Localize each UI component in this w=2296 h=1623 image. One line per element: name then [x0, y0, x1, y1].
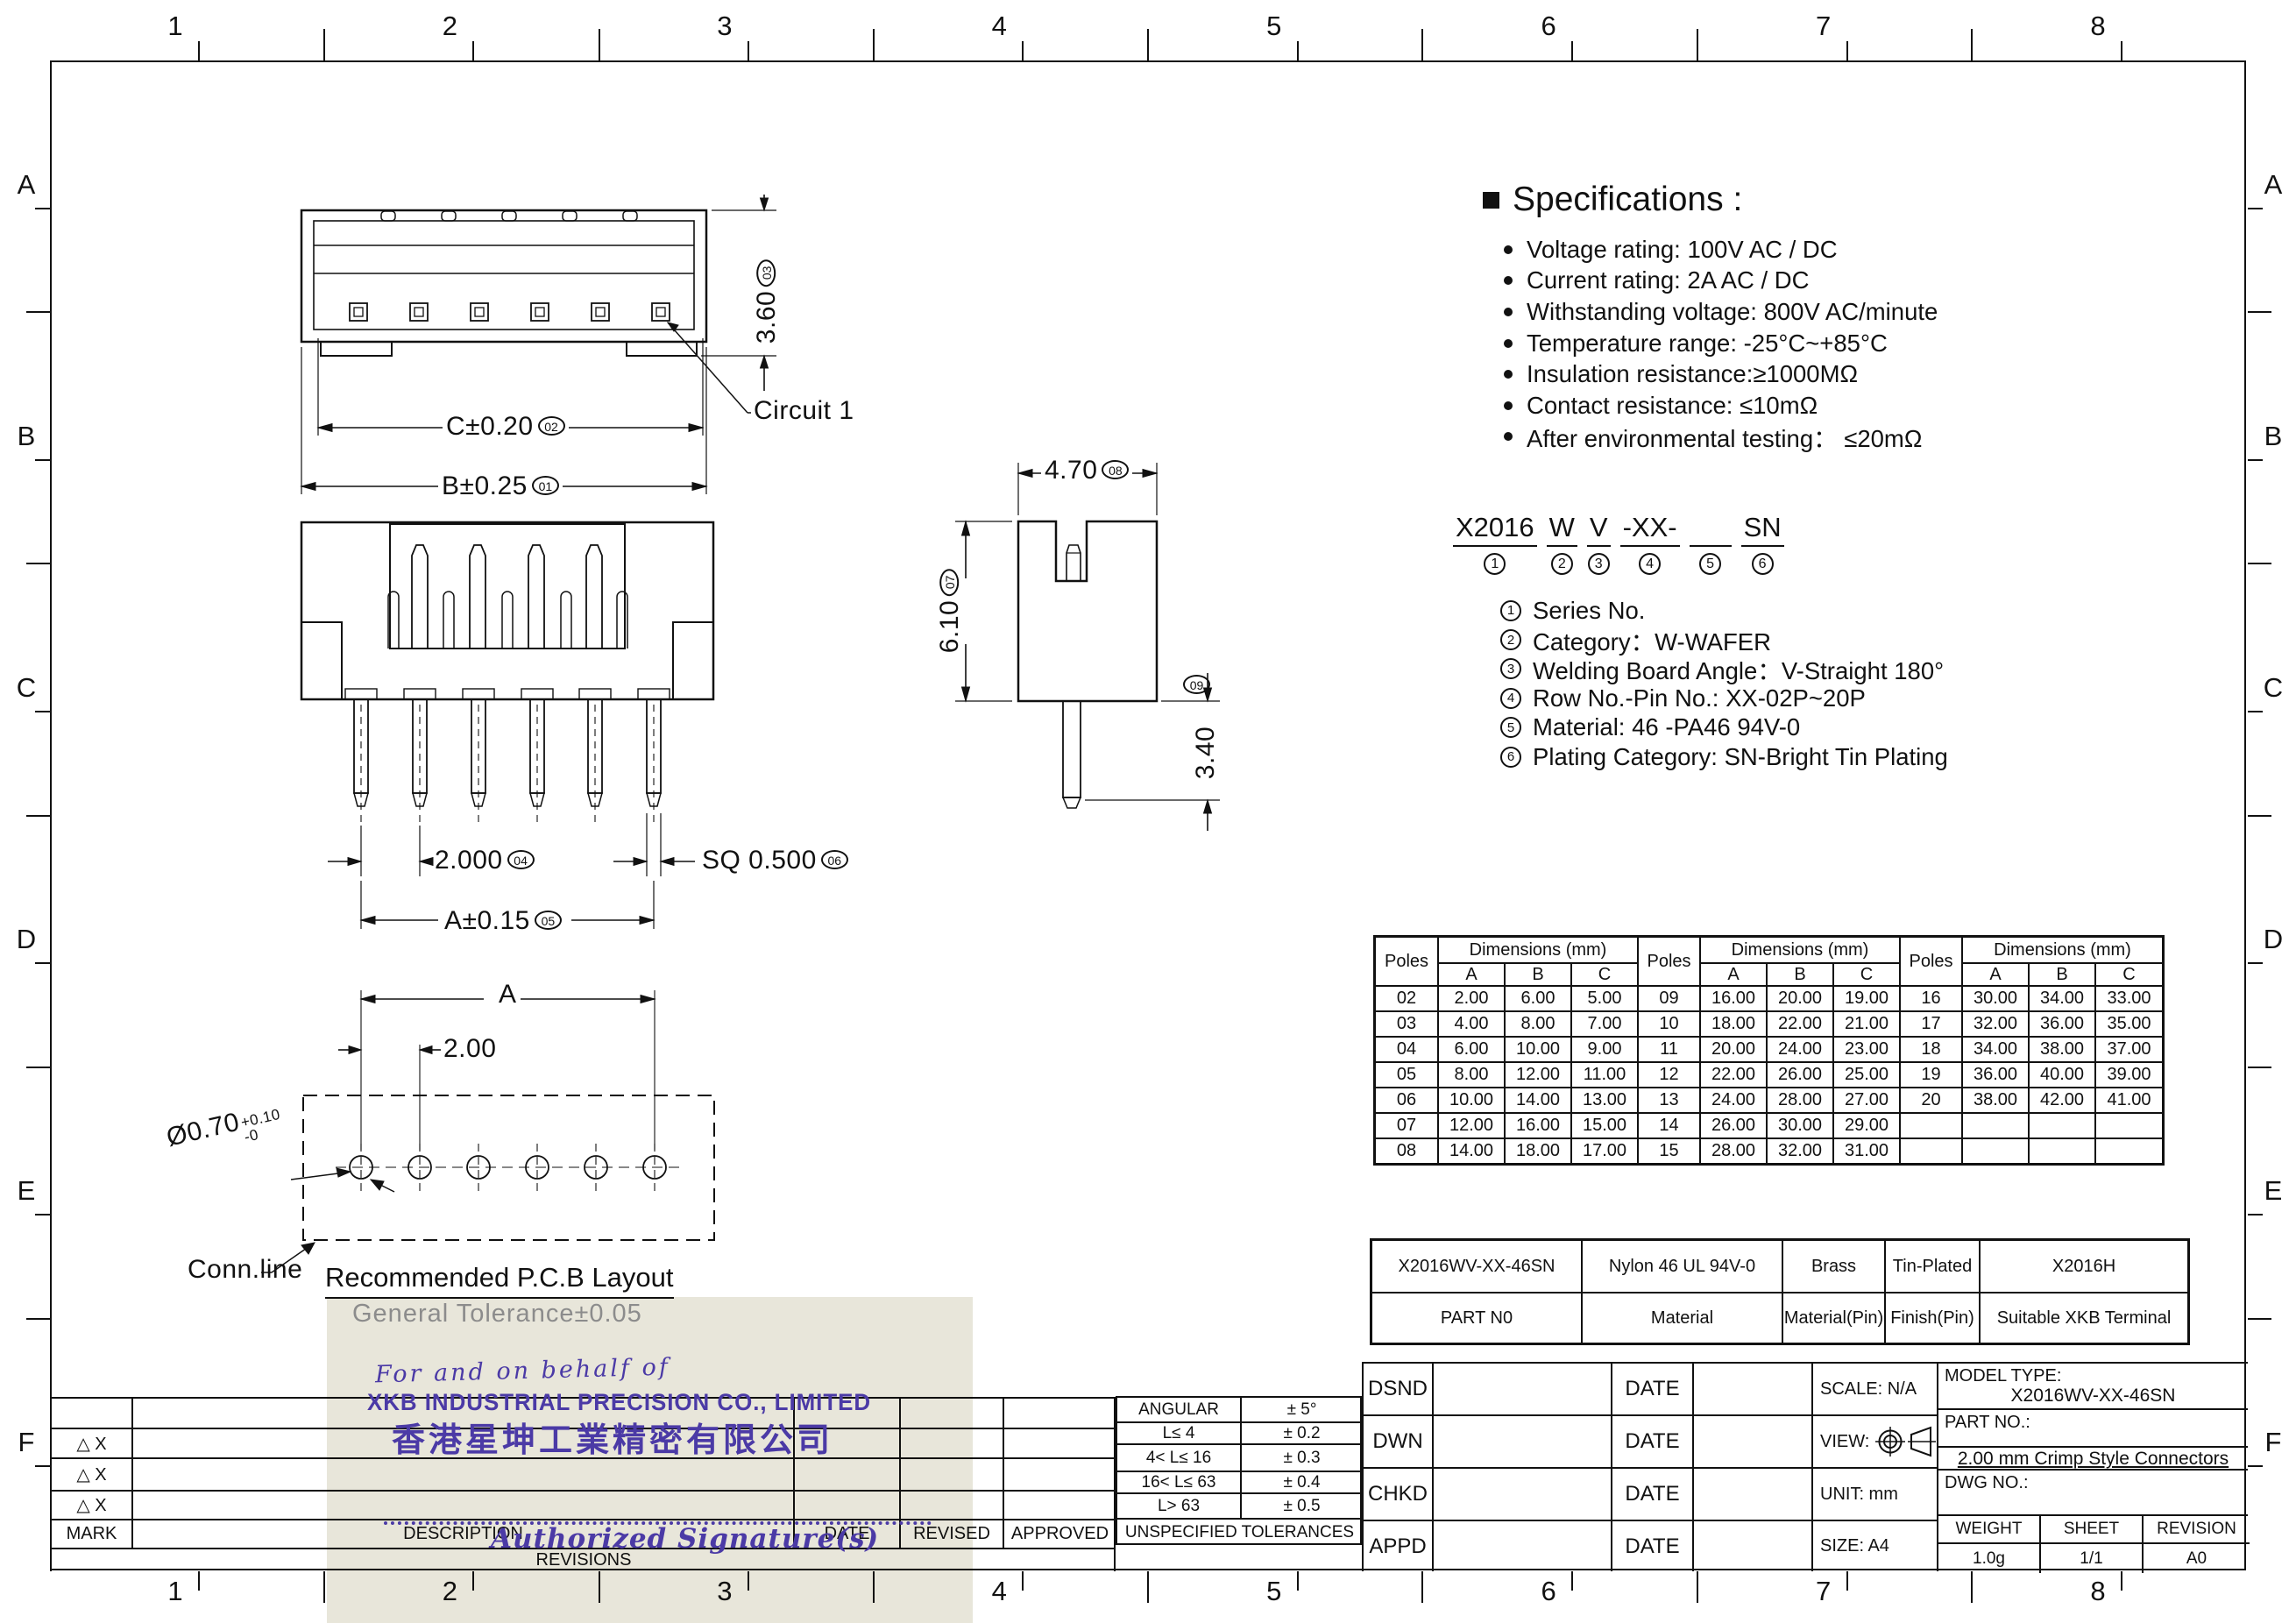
legend-text: Series No. [1533, 597, 1645, 625]
frame-column-label: 2 [430, 11, 469, 42]
table-cell: 42.00 [2028, 1087, 2094, 1112]
table-cell: 18 [1899, 1036, 1961, 1061]
table-cell: 20.00 [1766, 985, 1832, 1010]
dim-c: C±0.2002 [443, 412, 569, 442]
table-cell: Poles [1899, 938, 1961, 985]
product-name-cell: 2.00 mm Crimp Style Connectors [1938, 1448, 2248, 1471]
bullet-icon [1504, 401, 1513, 410]
table-cell: 34.00 [2028, 985, 2094, 1010]
tolerance-value: ± 0.5 [1240, 1492, 1362, 1518]
frame-tick [1421, 29, 1423, 60]
table-cell: △ X [50, 1490, 131, 1519]
frame-tick [26, 815, 50, 817]
table-cell: A [1437, 962, 1504, 985]
frame-row-label: B [7, 421, 46, 452]
part-code-text: X2016 [1453, 512, 1537, 547]
tolerance-range: L≤ 4 [1116, 1421, 1240, 1443]
spec-item-text: Insulation resistance:≥1000MΩ [1527, 360, 1858, 388]
ref-09: 09 [1183, 675, 1210, 694]
table-cell: 14.00 [1437, 1138, 1504, 1163]
dim-pin-340: 3.40 [1191, 723, 1221, 783]
frame-tick [2248, 1214, 2263, 1215]
table-cell: Dimensions (mm) [1961, 938, 2162, 962]
legend-text: Plating Category: SN-Bright Tin Plating [1533, 743, 1948, 771]
table-cell: 11.00 [1570, 1061, 1637, 1087]
table-cell: 06 [1376, 1087, 1437, 1112]
spec-item-text: Voltage rating: 100V AC / DC [1527, 236, 1838, 264]
table-cell: 04 [1376, 1036, 1437, 1061]
date-label: DATE [1611, 1467, 1692, 1520]
signature-label: DWN [1362, 1414, 1432, 1467]
frame-tick [35, 459, 50, 461]
frame-row-label: D [7, 924, 46, 955]
tolerance-range: ANGULAR [1116, 1396, 1240, 1421]
spec-item: Contact resistance: ≤10mΩ [1504, 390, 1938, 422]
table-cell: 35.00 [2094, 1010, 2162, 1036]
signature-field [1432, 1467, 1611, 1520]
legend-item: 5Material: 46 -PA46 94V-0 [1500, 713, 1948, 742]
frame-tick [35, 711, 50, 712]
bullet-icon [1504, 276, 1513, 285]
frame-tick [873, 29, 875, 60]
dim-pcb-a: A [495, 980, 521, 1010]
poles-dimension-table: PolesDimensions (mm)ABC022.006.005.00034… [1373, 935, 2165, 1166]
third-angle-projection-icon [1874, 1424, 1939, 1459]
table-cell: 10 [1637, 1010, 1699, 1036]
frame-tick [1022, 1571, 1024, 1591]
ref-02: 02 [538, 416, 565, 436]
table-cell: 16 [1899, 985, 1961, 1010]
table-cell: 32.00 [1766, 1138, 1832, 1163]
table-cell: 25.00 [1832, 1061, 1899, 1087]
table-cell: 20 [1899, 1087, 1961, 1112]
signature-field [1432, 1362, 1611, 1414]
table-cell: 18.00 [1699, 1010, 1766, 1036]
title-block-model: MODEL TYPE: X2016WV-XX-46SN PART NO.: 2.… [1937, 1362, 2248, 1571]
ref-01: 01 [532, 476, 559, 495]
dim-a-015: A±0.1505 [441, 906, 565, 936]
part-code-ref: 3 [1588, 553, 1610, 575]
table-cell: 40.00 [2028, 1061, 2094, 1087]
frame-tick [1971, 29, 1973, 60]
date-label: DATE [1611, 1414, 1692, 1467]
bullet-icon [1504, 245, 1513, 254]
model-type-label: MODEL TYPE: [1945, 1366, 2061, 1386]
part-code-segment: 5 [1690, 512, 1732, 575]
table-cell: 22.00 [1699, 1061, 1766, 1087]
table-cell: 23.00 [1832, 1036, 1899, 1061]
signature-label: DSND [1362, 1362, 1432, 1414]
table-cell: MARK [50, 1519, 131, 1548]
stamp-dotted-line [384, 1504, 932, 1525]
frame-tick [2248, 1067, 2271, 1068]
part-code-text: SN [1741, 512, 1784, 547]
table-cell [50, 1397, 131, 1428]
frame-column-label: 1 [156, 11, 195, 42]
table-cell: 29.00 [1832, 1112, 1899, 1138]
frame-row-label: F [2254, 1427, 2292, 1458]
frame-tick [26, 1067, 50, 1068]
table-cell [1961, 1112, 2028, 1138]
date-label: DATE [1611, 1362, 1692, 1414]
frame-tick [1697, 1571, 1698, 1603]
spec-item: Current rating: 2A AC / DC [1504, 266, 1938, 297]
part-number-code: X20161W2V3-XX-4 5SN6 [1453, 512, 1794, 575]
ref-06: 06 [821, 850, 848, 869]
table-cell: Finish(Pin) [1884, 1292, 1979, 1343]
model-type-cell: MODEL TYPE: X2016WV-XX-46SN [1938, 1364, 2248, 1410]
part-code-segment: -XX-4 [1620, 512, 1680, 575]
dim-height-360: 3.6003 [752, 256, 782, 347]
pcb-general-tolerance: General Tolerance±0.05 [352, 1300, 642, 1329]
legend-item: 3Welding Board Angle：V-Straight 180° [1500, 655, 1948, 684]
part-code-segment: SN6 [1741, 512, 1784, 575]
tolerance-table: ANGULAR± 5°L≤ 4± 0.24< L≤ 16± 0.316< L≤ … [1116, 1396, 1362, 1545]
table-cell: 30.00 [1961, 985, 2028, 1010]
table-cell: 36.00 [2028, 1010, 2094, 1036]
table-cell: 19 [1899, 1061, 1961, 1087]
part-no-label: PART NO.: [1945, 1413, 2030, 1433]
pcb-layout-title: Recommended P.C.B Layout [325, 1262, 674, 1299]
table-cell: C [1570, 962, 1637, 985]
table-cell [1899, 1138, 1961, 1163]
frame-row-label: A [2254, 169, 2292, 201]
dim-width-470: 4.7008 [1041, 456, 1132, 485]
table-cell: 6.00 [1504, 985, 1570, 1010]
tolerance-value: ± 0.4 [1240, 1471, 1362, 1492]
table-cell: 8.00 [1504, 1010, 1570, 1036]
info-cell: SIZE: A4 [1811, 1520, 1937, 1571]
table-cell: 24.00 [1699, 1087, 1766, 1112]
frame-tick [2121, 1571, 2122, 1591]
title-block: DSNDDATESCALE: N/ADWNDATEVIEW:CHKDDATEUN… [1362, 1362, 1937, 1571]
table-cell: B [1504, 962, 1570, 985]
table-cell: 12.00 [1437, 1112, 1504, 1138]
spec-item-text: Contact resistance: ≤10mΩ [1527, 392, 1818, 420]
signature-label: CHKD [1362, 1467, 1432, 1520]
ref-05: 05 [535, 911, 562, 930]
top-view-drawing [263, 193, 955, 508]
table-cell: 13.00 [1570, 1087, 1637, 1112]
part-number-legend: 1Series No.2Category：W-WAFER3Welding Boa… [1500, 596, 1948, 771]
frame-tick [2248, 711, 2263, 712]
stamp-line-4: Authorized Signature(s) [491, 1523, 879, 1555]
part-code-text: V [1587, 512, 1611, 547]
part-code-ref: 4 [1639, 553, 1661, 575]
info-cell: SCALE: N/A [1811, 1362, 1937, 1414]
material-table: X2016WV-XX-46SN Nylon 46 UL 94V-0 Brass … [1370, 1238, 2190, 1345]
frame-tick [26, 563, 50, 564]
dim-b: B±0.2501 [438, 471, 563, 501]
table-cell: 33.00 [2094, 985, 2162, 1010]
frame-tick [2248, 962, 2263, 964]
frame-tick [1571, 1571, 1573, 1591]
part-code-segment: V3 [1587, 512, 1611, 575]
table-cell: Dimensions (mm) [1699, 938, 1899, 962]
frame-row-label: D [2254, 924, 2292, 955]
info-text: VIEW: [1820, 1432, 1869, 1452]
table-cell: 2.00 [1437, 985, 1504, 1010]
frame-column-label: 5 [1255, 11, 1293, 42]
wsr-value-row: 1.0g 1/1 A0 [1938, 1542, 2248, 1573]
spec-item: After environmental testing： ≤20mΩ [1504, 422, 1938, 453]
table-cell: 31.00 [1832, 1138, 1899, 1163]
dwg-no-cell: DWG NO.: [1938, 1471, 2248, 1516]
specifications-list: Voltage rating: 100V AC / DCCurrent rati… [1504, 234, 1938, 452]
part-code-text [1690, 512, 1732, 547]
frame-row-label: F [7, 1427, 46, 1458]
table-cell: A [1699, 962, 1766, 985]
part-code-ref: 6 [1752, 553, 1774, 575]
legend-ref: 3 [1500, 658, 1521, 679]
spec-item: Temperature range: -25°C~+85°C [1504, 328, 1938, 359]
table-cell: 22.00 [1766, 1010, 1832, 1036]
legend-ref: 4 [1500, 688, 1521, 709]
table-cell: 28.00 [1699, 1138, 1766, 1163]
frame-tick [1147, 1571, 1149, 1603]
table-cell: C [1832, 962, 1899, 985]
frame-tick [323, 1571, 325, 1603]
table-cell: Dimensions (mm) [1437, 938, 1637, 962]
tolerance-value: ± 5° [1240, 1396, 1362, 1421]
part-code-segment: W2 [1547, 512, 1577, 575]
tolerance-footer: UNSPECIFIED TOLERANCES [1116, 1518, 1362, 1545]
table-cell: 11 [1637, 1036, 1699, 1061]
side-view-drawing [929, 438, 1315, 859]
frame-row-label: B [2254, 421, 2292, 452]
table-cell [2094, 1112, 2162, 1138]
specifications-title: Specifications : [1483, 181, 1742, 219]
frame-tick [748, 41, 749, 60]
table-cell: 38.00 [2028, 1036, 2094, 1061]
product-name: 2.00 mm Crimp Style Connectors [1938, 1449, 2248, 1470]
table-cell: 07 [1376, 1112, 1437, 1138]
table-cell: 16.00 [1504, 1112, 1570, 1138]
frame-tick [198, 1571, 200, 1591]
bullet-icon [1504, 339, 1513, 348]
part-code-ref: 2 [1551, 553, 1573, 575]
table-cell [1003, 1490, 1116, 1519]
table-cell: APPROVED [1003, 1519, 1116, 1548]
table-cell: 6.00 [1437, 1036, 1504, 1061]
table-cell: 12.00 [1504, 1061, 1570, 1087]
table-cell: 13 [1637, 1087, 1699, 1112]
frame-tick [599, 29, 600, 60]
spec-item: Withstanding voltage: 800V AC/minute [1504, 296, 1938, 328]
table-cell: 39.00 [2094, 1061, 2162, 1087]
frame-tick [1297, 41, 1299, 60]
table-cell: 27.00 [1832, 1087, 1899, 1112]
table-cell: 10.00 [1504, 1036, 1570, 1061]
frame-column-label: 1 [156, 1576, 195, 1607]
front-view-drawing [263, 508, 955, 955]
weight-value: 1.0g [1938, 1542, 2039, 1573]
table-cell: 14.00 [1504, 1087, 1570, 1112]
spec-item: Insulation resistance:≥1000MΩ [1504, 358, 1938, 390]
info-text: SCALE: N/A [1820, 1379, 1917, 1400]
info-cell: VIEW: [1811, 1414, 1937, 1467]
revision-header: REVISION [2142, 1516, 2250, 1542]
table-cell: 28.00 [1766, 1087, 1832, 1112]
sheet-header: SHEET [2039, 1516, 2142, 1542]
table-cell: 30.00 [1766, 1112, 1832, 1138]
frame-tick [2248, 563, 2271, 564]
signature-field [1432, 1414, 1611, 1467]
table-cell: Material(Pin) [1782, 1292, 1884, 1343]
table-cell: 05 [1376, 1061, 1437, 1087]
table-cell: 5.00 [1570, 985, 1637, 1010]
ref-07: 07 [939, 569, 959, 596]
legend-text: Row No.-Pin No.: XX-02P~20P [1533, 684, 1866, 712]
table-cell: 12 [1637, 1061, 1699, 1087]
frame-column-label: 5 [1255, 1576, 1293, 1607]
table-cell: 7.00 [1570, 1010, 1637, 1036]
revision-value: A0 [2142, 1542, 2250, 1573]
date-field [1692, 1467, 1811, 1520]
tolerance-range: 16< L≤ 63 [1116, 1471, 1240, 1492]
table-cell: 26.00 [1766, 1061, 1832, 1087]
frame-row-label: C [7, 672, 46, 704]
ref-03: 03 [756, 259, 776, 287]
frame-tick [35, 1214, 50, 1215]
frame-tick [35, 962, 50, 964]
table-cell: 18.00 [1504, 1138, 1570, 1163]
bullet-icon [1504, 432, 1513, 441]
frame-tick [1147, 29, 1149, 60]
circuit-1-label: Circuit 1 [750, 396, 858, 426]
table-cell: A [1961, 962, 2028, 985]
legend-item: 6Plating Category: SN-Bright Tin Plating [1500, 742, 1948, 771]
part-code-segment: X20161 [1453, 512, 1537, 575]
table-cell: 15.00 [1570, 1112, 1637, 1138]
frame-tick [35, 1465, 50, 1467]
spec-item-text: After environmental testing： ≤20mΩ [1527, 419, 1922, 454]
legend-text: Welding Board Angle：V-Straight 180° [1533, 651, 1944, 686]
signature-label: APPD [1362, 1520, 1432, 1571]
spec-item-text: Temperature range: -25°C~+85°C [1527, 330, 1888, 358]
frame-tick [1421, 1571, 1423, 1603]
frame-tick [1971, 1571, 1973, 1603]
table-cell: 32.00 [1961, 1010, 2028, 1036]
table-cell: B [2028, 962, 2094, 985]
frame-tick [1297, 1571, 1299, 1591]
table-cell: Tin-Plated [1884, 1241, 1979, 1292]
ref-08: 08 [1102, 460, 1129, 479]
model-type-value: X2016WV-XX-46SN [1938, 1386, 2248, 1407]
part-code-ref: 5 [1699, 553, 1721, 575]
frame-tick [1846, 1571, 1848, 1591]
frame-tick [2248, 311, 2271, 313]
wsr-header-row: WEIGHT SHEET REVISION [1938, 1516, 2248, 1542]
frame-row-label: C [2254, 672, 2292, 704]
frame-tick [1571, 41, 1573, 60]
legend-item: 1Series No. [1500, 596, 1948, 625]
frame-tick [2248, 1318, 2271, 1320]
square-bullet-icon [1483, 192, 1499, 209]
frame-row-label: E [2254, 1175, 2292, 1207]
table-cell: PART N0 [1372, 1292, 1581, 1343]
table-cell: 4.00 [1437, 1010, 1504, 1036]
tolerance-value: ± 0.3 [1240, 1443, 1362, 1471]
table-cell: C [2094, 962, 2162, 985]
table-cell: Poles [1376, 938, 1437, 985]
frame-tick [198, 41, 200, 60]
table-cell: 02 [1376, 985, 1437, 1010]
frame-column-label: 6 [1529, 1576, 1568, 1607]
table-cell: B [1766, 962, 1832, 985]
frame-column-label: 6 [1529, 11, 1568, 42]
part-no-cell: PART NO.: [1938, 1410, 2248, 1448]
frame-tick [35, 208, 50, 209]
table-cell: Material [1581, 1292, 1782, 1343]
table-cell: 14 [1637, 1112, 1699, 1138]
weight-header: WEIGHT [1938, 1516, 2039, 1542]
table-cell: 15 [1637, 1138, 1699, 1163]
table-cell: X2016H [1979, 1241, 2187, 1292]
table-cell: 17.00 [1570, 1138, 1637, 1163]
frame-column-label: 7 [1804, 1576, 1843, 1607]
table-cell: Poles [1637, 938, 1699, 985]
legend-item: 4Row No.-Pin No.: XX-02P~20P [1500, 684, 1948, 712]
frame-tick [26, 1318, 50, 1320]
frame-column-label: 8 [2079, 1576, 2117, 1607]
table-cell: △ X [50, 1428, 131, 1457]
dim-pitch-2000: 2.00004 [431, 846, 538, 875]
info-text: UNIT: mm [1820, 1485, 1898, 1505]
conn-line-label: Conn.line [184, 1255, 306, 1285]
table-cell: 41.00 [2094, 1087, 2162, 1112]
table-cell: 38.00 [1961, 1087, 2028, 1112]
frame-tick [1022, 41, 1024, 60]
frame-tick [1697, 29, 1698, 60]
table-cell [2094, 1138, 2162, 1163]
part-code-text: W [1547, 512, 1577, 547]
frame-tick [2248, 459, 2263, 461]
dwg-no-label: DWG NO.: [1945, 1473, 2029, 1493]
table-cell: 08 [1376, 1138, 1437, 1163]
ref-04: 04 [507, 850, 535, 869]
frame-tick [2248, 208, 2263, 209]
frame-tick [323, 29, 325, 60]
table-cell: △ X [50, 1457, 131, 1490]
sheet-value: 1/1 [2039, 1542, 2142, 1573]
frame-tick [472, 41, 474, 60]
table-cell [1899, 1112, 1961, 1138]
table-cell: 24.00 [1766, 1036, 1832, 1061]
part-code-text: -XX- [1620, 512, 1680, 547]
legend-ref: 2 [1500, 629, 1521, 650]
frame-row-label: A [7, 169, 46, 201]
table-cell: X2016WV-XX-46SN [1372, 1241, 1581, 1292]
table-cell: 19.00 [1832, 985, 1899, 1010]
table-cell [1961, 1138, 2028, 1163]
date-field [1692, 1520, 1811, 1571]
frame-column-label: 3 [705, 11, 744, 42]
table-cell: 21.00 [1832, 1010, 1899, 1036]
frame-tick [2248, 1465, 2263, 1467]
tolerance-range: 4< L≤ 16 [1116, 1443, 1240, 1471]
legend-text: Material: 46 -PA46 94V-0 [1533, 713, 1800, 741]
date-field [1692, 1362, 1811, 1414]
table-cell: 9.00 [1570, 1036, 1637, 1061]
table-cell: Nylon 46 UL 94V-0 [1581, 1241, 1782, 1292]
frame-row-label: E [7, 1175, 46, 1207]
table-cell: 36.00 [1961, 1061, 2028, 1087]
table-cell: Brass [1782, 1241, 1884, 1292]
frame-tick [2121, 41, 2122, 60]
dim-sq-0500: SQ 0.50006 [698, 846, 852, 875]
table-cell: 8.00 [1437, 1061, 1504, 1087]
